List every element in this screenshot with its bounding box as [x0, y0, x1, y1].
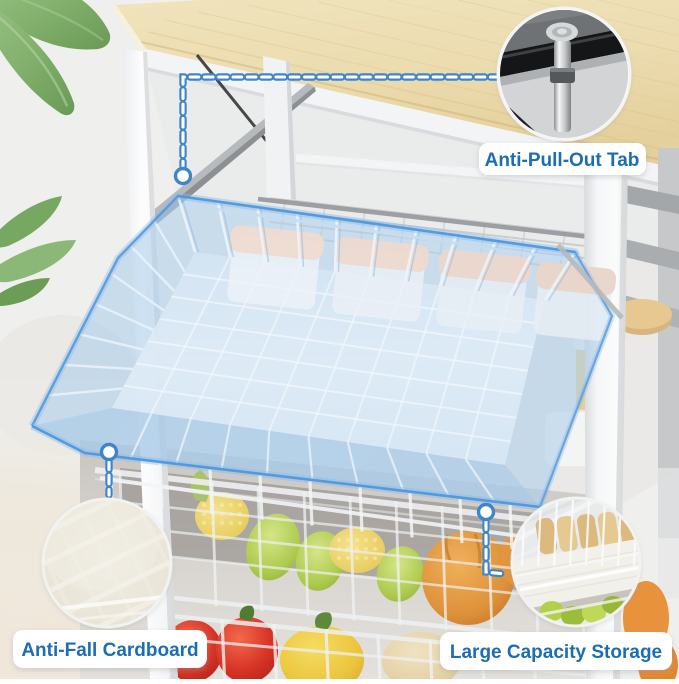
svg-text:Large Capacity Storage: Large Capacity Storage: [450, 642, 662, 663]
svg-text:Anti-Fall Cardboard: Anti-Fall Cardboard: [21, 640, 198, 661]
svg-text:Anti-Pull-Out Tab: Anti-Pull-Out Tab: [485, 150, 640, 171]
